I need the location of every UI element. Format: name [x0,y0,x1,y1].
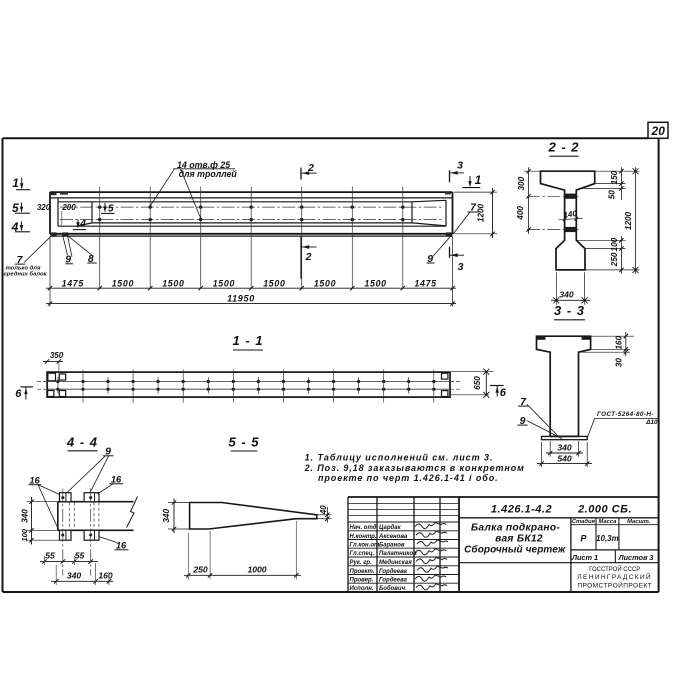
svg-text:340: 340 [162,509,171,523]
svg-text:55: 55 [45,551,55,561]
svg-text:300: 300 [517,176,526,190]
svg-text:16: 16 [116,540,127,550]
svg-text:30: 30 [615,358,624,368]
svg-text:1. Таблицу исполнений см. лис: 1. Таблицу исполнений см. лист 3. [305,453,494,463]
svg-text:6: 6 [500,387,507,399]
svg-text:4 - 4: 4 - 4 [66,435,98,450]
svg-text:для троллей: для троллей [179,169,238,179]
svg-text:Провер.: Провер. [350,578,374,584]
svg-text:200: 200 [61,203,76,212]
svg-text:Проект.: Проект. [350,569,375,575]
svg-text:400: 400 [516,206,525,221]
svg-text:Нач. отд: Нач. отд [350,525,377,531]
svg-text:160: 160 [98,570,113,580]
svg-text:вая БК12: вая БК12 [495,533,543,544]
svg-text:2: 2 [307,162,314,174]
svg-text:340: 340 [67,570,82,580]
svg-text:Цардак: Цардак [379,525,402,531]
svg-text:Палатников: Палатников [379,551,417,557]
svg-text:20: 20 [651,124,666,138]
svg-text:2: 2 [305,251,312,263]
svg-text:6: 6 [15,388,22,400]
svg-text:100: 100 [20,528,29,541]
svg-text:340: 340 [557,443,572,453]
svg-text:5: 5 [108,204,114,215]
svg-text:10,3т: 10,3т [596,534,619,543]
svg-text:1: 1 [12,176,19,190]
svg-text:ГОССТРОЙ СССР: ГОССТРОЙ СССР [589,565,640,573]
svg-text:4: 4 [79,219,86,230]
svg-text:5 - 5: 5 - 5 [228,435,259,450]
svg-text:Рук. гр.: Рук. гр. [350,560,373,566]
svg-text:ЛЕНИНГРАДСКИЙ: ЛЕНИНГРАДСКИЙ [577,572,652,581]
svg-text:250: 250 [610,252,619,267]
svg-text:Исполн.: Исполн. [350,586,374,592]
svg-text:1.426.1-4.2: 1.426.1-4.2 [491,504,552,516]
svg-text:Гордеева: Гордеева [379,569,408,575]
svg-text:1500: 1500 [162,278,184,288]
svg-text:100: 100 [610,237,619,251]
svg-text:2.000 СБ.: 2.000 СБ. [577,504,632,516]
svg-text:3 - 3: 3 - 3 [554,303,585,318]
svg-text:16: 16 [29,475,40,485]
svg-text:Н.контр.: Н.контр. [350,534,377,540]
svg-text:1200: 1200 [477,203,486,222]
svg-text:Аксенова: Аксенова [378,534,408,540]
svg-text:320: 320 [37,203,51,212]
svg-text:1475: 1475 [414,278,436,288]
svg-text:150: 150 [610,170,619,184]
svg-text:1500: 1500 [112,278,134,288]
svg-text:Бобович: Бобович [379,585,406,592]
svg-text:Гордеева: Гордеева [379,578,408,584]
svg-text:1500: 1500 [263,278,285,288]
svg-text:Гл.спец.: Гл.спец. [350,551,375,557]
svg-text:ГОСТ-5264-80-Н-: ГОСТ-5264-80-Н- [597,411,654,418]
svg-text:1500: 1500 [314,278,336,288]
svg-text:16: 16 [111,474,122,484]
svg-text:250: 250 [192,564,208,574]
svg-text:1: 1 [475,173,482,187]
svg-text:Масса: Масса [599,519,618,525]
svg-text:1500: 1500 [213,278,235,288]
svg-text:1500: 1500 [364,278,386,288]
svg-text:Сборочный чертеж: Сборочный чертеж [464,543,566,555]
svg-text:1 - 1: 1 - 1 [232,333,263,348]
svg-text:50: 50 [608,190,617,200]
svg-text:Балка подкрано-: Балка подкрано- [471,522,560,533]
svg-text:ПРОМСТРОЙПРОЕКТ: ПРОМСТРОЙПРОЕКТ [577,581,652,590]
svg-text:140: 140 [563,209,578,220]
svg-text:Р: Р [580,534,587,544]
svg-text:средних балок: средних балок [4,270,48,277]
svg-text:Δ10: Δ10 [645,419,658,426]
svg-text:540: 540 [557,454,572,464]
svg-text:1200: 1200 [624,211,633,230]
svg-text:340: 340 [559,290,574,300]
svg-text:Гл.кон.от: Гл.кон.от [350,543,381,549]
svg-text:40: 40 [319,505,328,515]
svg-text:350: 350 [50,351,64,360]
svg-text:55: 55 [75,551,85,561]
svg-text:Лист 1: Лист 1 [571,553,598,562]
svg-text:2 - 2: 2 - 2 [547,140,579,155]
svg-text:Мединская: Мединская [379,560,412,566]
svg-text:проекте по черт 1.426.1-41 i о: проекте по черт 1.426.1-41 i обо. [318,473,499,483]
svg-text:1475: 1475 [62,278,84,288]
svg-text:340: 340 [20,509,29,523]
svg-text:2. Поз. 9,18 заказываются в ко: 2. Поз. 9,18 заказываются в конкретном [304,463,525,473]
svg-text:160: 160 [614,336,623,350]
svg-text:650: 650 [473,376,482,390]
svg-text:Листов 3: Листов 3 [618,553,654,562]
svg-text:3: 3 [457,160,463,172]
svg-text:3: 3 [458,261,464,273]
svg-text:Баранов: Баранов [379,543,405,549]
svg-text:Стадия: Стадия [572,519,596,525]
svg-text:1000: 1000 [247,564,266,574]
svg-text:Масшт.: Масшт. [627,519,651,525]
svg-text:11950: 11950 [227,294,255,304]
